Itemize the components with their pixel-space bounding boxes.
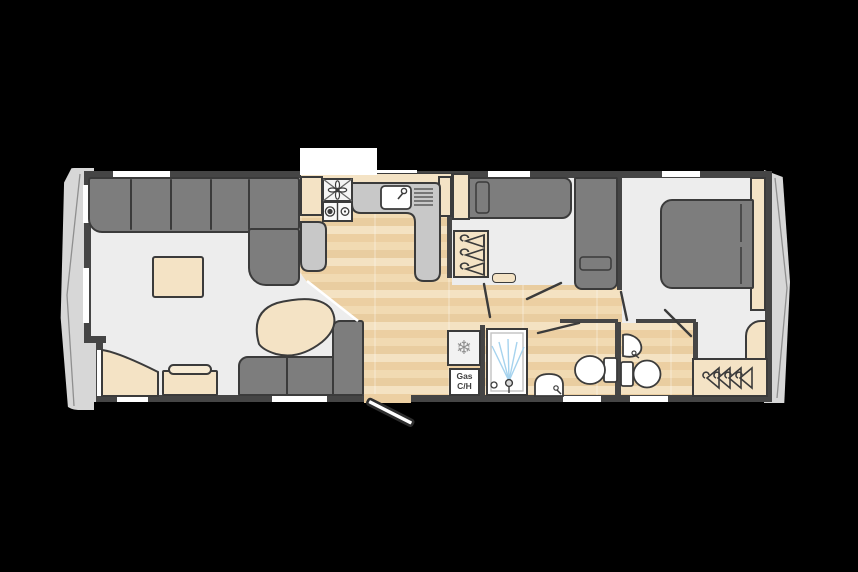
hanger-icons-master — [703, 368, 752, 388]
ensuite-toilet-bowl — [634, 361, 661, 388]
hanger-icons-twin — [461, 235, 484, 275]
shower-control — [491, 382, 497, 388]
twin-bed1-pillow — [476, 182, 489, 213]
worktop-left — [301, 222, 326, 271]
shower-spray-icon — [492, 339, 524, 381]
occasional-table — [257, 299, 335, 355]
hall-angle-wall — [527, 283, 561, 299]
bathroom-door — [538, 323, 579, 333]
floorplan-canvas: ❄ Gas C/H — [0, 0, 858, 572]
roof-vent — [300, 148, 377, 175]
hob-burners-icon — [325, 202, 348, 221]
corner-seat — [102, 350, 158, 396]
ensuite-door — [621, 292, 627, 320]
hull-front-crease — [67, 174, 80, 406]
toilet-cistern — [604, 358, 617, 382]
shower-head — [506, 380, 513, 387]
interior-door-lines — [484, 283, 691, 336]
toilet-bowl — [575, 356, 605, 384]
ensuite-basin-tap — [632, 351, 636, 355]
fixtures-overlay — [0, 0, 858, 572]
hull-rear-crease — [775, 178, 787, 398]
twin-bed2-pillow — [580, 257, 611, 270]
ensuite-toilet-cistern — [621, 362, 633, 386]
extractor-fan-icon — [323, 179, 352, 201]
sofa-cushion-dividers — [131, 180, 287, 394]
twin-door — [484, 284, 490, 317]
entrance-door-leaf — [367, 398, 414, 426]
master-door — [665, 310, 691, 336]
